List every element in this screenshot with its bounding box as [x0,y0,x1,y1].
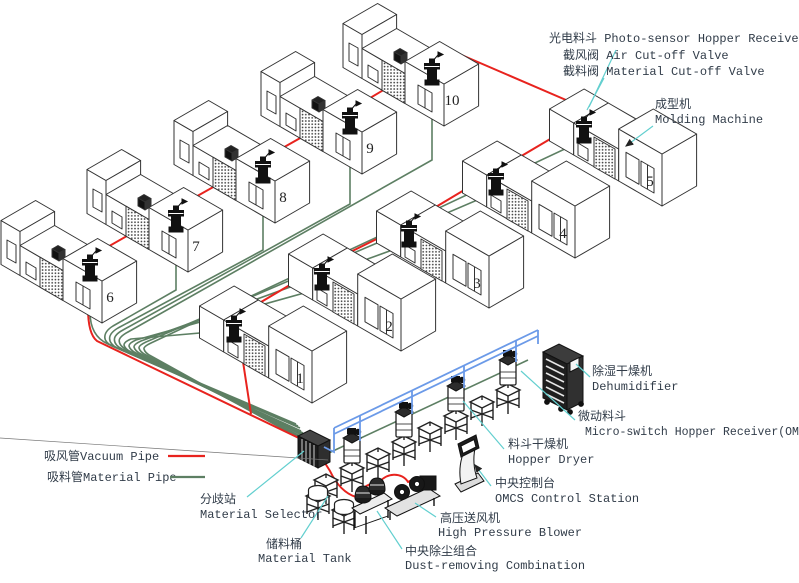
label-omh-zh: 微动料斗 [578,409,626,424]
dehumidifier [543,344,583,414]
label-tank-en: Material Tank [258,552,352,566]
label-tank-zh: 储料桶 [266,536,302,552]
label-blower-zh: 高压送风机 [440,510,500,526]
label-dust-en: Dust-removing Combination [405,559,585,573]
legend-material-label: 吸料管Material Pipe [47,469,177,485]
label-selector-en: Material Selector [200,508,322,522]
label-air-valve: 截风阀 Air Cut-off Valve [563,48,729,63]
control-station-pedestal [455,435,484,492]
machine-number: 9 [366,141,374,157]
leader-blower [415,503,436,517]
equipment-stand [470,396,494,426]
machine-number: 7 [192,239,200,255]
legend: 吸风管Vacuum Pipe 吸料管Material Pipe [44,448,205,485]
label-blower-en: High Pressure Blower [438,526,582,540]
machine-number: 3 [473,276,481,292]
label-control-en: OMCS Control Station [495,492,639,506]
leader-selector [247,451,304,497]
equipment-stand [418,422,442,452]
machine-number: 6 [106,290,114,306]
machine-number: 8 [279,190,287,206]
legend-vacuum-label: 吸风管Vacuum Pipe [44,448,159,464]
machine-number: 4 [559,226,567,242]
label-dehumidifier-en: Dehumidifier [592,380,678,394]
label-dehumidifier-zh: 除湿干燥机 [592,363,652,379]
machine-number: 5 [646,174,654,190]
machine-number: 1 [296,371,304,387]
label-hopper-dryer-en: Hopper Dryer [508,453,594,467]
label-molding-en: Molding Machine [655,113,763,127]
machine-number: 10 [445,93,460,109]
machine-number: 2 [385,319,393,335]
label-molding-zh: 成型机 [655,97,691,112]
label-selector-zh: 分歧站 [200,492,236,507]
label-omh-en: Micro-switch Hopper Receiver(OMH) [585,426,799,439]
label-hopper-dryer-zh: 料斗干燥机 [508,437,568,452]
diagram-canvas: 10 9 8 7 6 5 4 [0,0,799,583]
equipment-stand [366,448,390,478]
label-oph: 光电料斗 Photo-sensor Hopper Receiver(OPH) [549,31,799,46]
high-pressure-blower [385,476,440,520]
label-dust-zh: 中央除尘组合 [405,543,477,559]
label-control-zh: 中央控制台 [495,475,555,491]
system-diagram: 10 9 8 7 6 5 4 [0,0,799,583]
label-material-valve: 截料阀 Material Cut-off Valve [563,64,765,79]
material-tank [332,500,356,535]
